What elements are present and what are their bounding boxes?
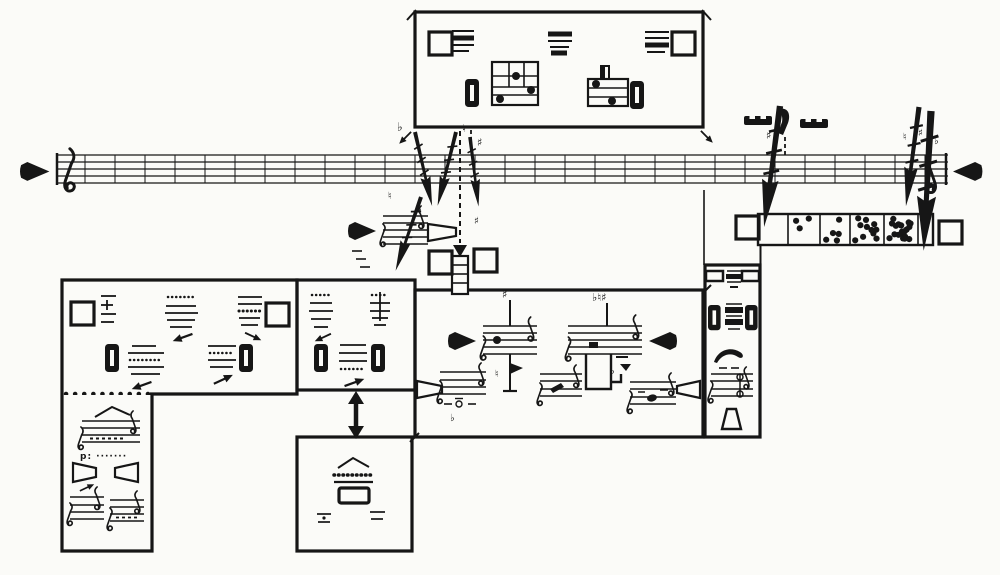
open-trapezoid-right [428,224,456,241]
slot-bar [314,344,328,372]
slot-bar [708,305,721,330]
double-headed-arrow [348,391,364,439]
accidental-marks: ♭ ♮ ♯ ♮ ♭ ♯ ♯ ♮ ♯ ♭ ♯ ♭♮♯ ♮ ♭ ♭ [388,120,939,424]
svg-text:♯: ♯ [477,136,482,149]
open-square [429,251,452,274]
svg-text:♮: ♮ [462,122,466,135]
density-dot [895,232,901,238]
start-play-arrow-icon [20,162,49,181]
density-dot [860,234,866,240]
line-cluster [339,345,367,390]
line-cluster-dagger [370,292,390,325]
slot-bar [239,344,253,372]
density-dot [797,225,803,231]
main-timeline [20,149,982,193]
bracket-bar [744,114,772,125]
open-square [736,216,759,239]
line-cluster [309,295,333,344]
svg-text:♮: ♮ [903,132,907,143]
ladder-strip [452,256,468,294]
svg-text:♭: ♭ [610,366,615,377]
line-cluster [725,304,743,329]
svg-text:♭: ♭ [397,120,403,134]
glissando-arrows [348,105,941,294]
density-cell [886,216,913,242]
center-panel [415,290,703,437]
open-square [429,32,452,55]
density-dot [830,230,836,236]
density-dot [857,222,863,228]
bracket-bar [742,271,759,281]
open-square [474,249,497,272]
mini-staff-stem-sharp [480,300,537,391]
svg-text:♭: ♭ [450,413,455,424]
density-dot [898,222,904,228]
line-cluster [452,31,474,51]
line-cluster [726,271,742,287]
mini-staff [437,363,486,407]
open-square [939,221,962,244]
density-dot [834,237,840,243]
slot-bar [465,79,479,107]
density-cell [793,216,812,232]
tick-marks [317,512,385,522]
top-panel [415,12,703,127]
slot-bar [745,305,758,330]
density-dot [836,217,842,223]
svg-text:♯: ♯ [766,129,771,142]
svg-text:♯: ♯ [502,288,507,301]
dotted-cluster [334,475,373,482]
score-canvas: p: ······· [0,0,1000,575]
density-dot [893,223,899,229]
bracket-bar [706,271,723,281]
thick-arrow-down [899,106,926,207]
bottom-middle-panel [297,437,412,551]
svg-text:♮: ♮ [388,191,392,202]
filled-arrow-right-icon [348,222,376,240]
caret-mark [338,458,369,468]
end-play-arrow-icon [953,162,982,181]
filled-arrow-left-icon [649,332,677,350]
open-bell-up [722,409,741,429]
dynamic-text: p: ······· [80,452,127,462]
svg-text:♯: ♯ [474,216,479,227]
density-dot [823,237,829,243]
mini-staff [537,365,582,406]
density-dot [855,215,861,221]
open-trapezoid-left [677,381,700,398]
corner-arrow-down-right [699,129,715,145]
density-dot [806,216,812,222]
density-dot [870,230,876,236]
left-lower-panel: p: ······· [62,394,152,551]
slot-bar [630,81,644,109]
density-dot [902,228,908,234]
svg-text:♭: ♭ [417,204,422,215]
svg-text:♭: ♭ [934,136,939,147]
density-dot [871,221,877,227]
density-dot [902,234,908,240]
filled-arrow-right-icon [448,332,476,350]
staff-lines [57,155,948,183]
score-page: p: ······· [0,0,1000,575]
right-column-panel [705,265,760,437]
middle-panel [297,280,415,390]
density-dot [852,237,858,243]
open-square [672,32,695,55]
slot-bar [371,344,385,372]
density-dot [793,218,799,224]
slot-bar [105,344,119,372]
svg-text:♭♮♯: ♭♮♯ [592,291,606,304]
density-cell [852,215,880,243]
density-dot [873,236,879,242]
density-dot [863,217,869,223]
density-cell [823,217,842,244]
svg-text:♮: ♮ [495,369,499,380]
svg-text:♯: ♯ [918,128,923,139]
density-dot [906,224,912,230]
note-grid [492,62,538,105]
hat-curve [714,349,743,363]
note-grid [588,66,628,106]
open-frame [339,488,369,503]
left-panel [62,280,297,394]
density-dot [836,231,842,237]
bracket-bar [800,117,828,128]
density-dot [886,235,892,241]
mini-staff [627,373,676,414]
line-cluster [548,34,572,53]
line-cluster [645,32,669,52]
mini-staff [708,367,753,403]
